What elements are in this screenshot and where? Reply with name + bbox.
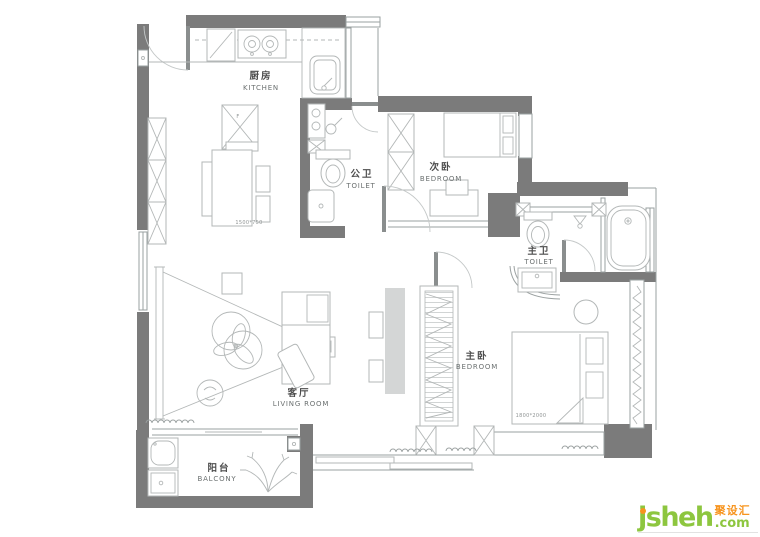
projection-screen-icon	[154, 267, 165, 419]
living-room-label-zh: 客厅	[286, 387, 310, 399]
window-second-bedroom	[519, 114, 532, 158]
side-table-icon	[222, 273, 242, 294]
kitchen-label-en: KITCHEN	[243, 84, 279, 92]
plant-icon	[240, 452, 297, 492]
fridge-icon	[207, 29, 235, 61]
wall-meter-box	[138, 50, 148, 66]
dining-chair	[256, 166, 270, 192]
second-bedroom-door	[382, 186, 430, 232]
speaker-icon	[369, 312, 383, 338]
master-bed-dimension: 1800*2000	[516, 413, 547, 419]
shower-head-icon	[574, 216, 586, 228]
bay-window-band	[494, 432, 604, 455]
entry-door	[144, 26, 190, 70]
island-cabinet	[222, 105, 258, 151]
kitchen-right-wall	[346, 28, 351, 98]
dining-chair	[256, 196, 270, 222]
master-toilet-label-zh: 主卫	[527, 245, 550, 257]
stove-icon	[238, 30, 286, 58]
toilet-icon	[316, 150, 350, 187]
floor-plan-canvas: 厨房 KITCHEN 公卫 TOILET 次卧 BEDROOM 主卫 TOILE…	[0, 0, 760, 537]
living-room-furniture	[152, 267, 335, 435]
window-master-bedroom	[630, 280, 644, 428]
basin-icon	[326, 118, 342, 134]
ceiling-fan-icon	[212, 312, 262, 369]
living-room-label-en: LIVING ROOM	[273, 400, 329, 408]
master-toilet-label-en: TOILET	[523, 258, 553, 266]
logo-tld-text: .com	[715, 517, 751, 530]
balcony-label-zh: 阳台	[207, 462, 230, 474]
second-bedroom-label-en: BEDROOM	[420, 175, 462, 183]
guest-toilet-door	[352, 102, 378, 132]
balcony-label-en: BALCONY	[197, 475, 236, 483]
logo-brand-text: jsheh	[638, 507, 713, 530]
toilet-icon	[524, 212, 552, 247]
shower-tray-icon	[308, 190, 334, 222]
vanity-icon	[518, 268, 556, 292]
dining-bench	[202, 162, 212, 216]
washer-column-icon	[308, 104, 325, 153]
master-bedroom-label-en: BEDROOM	[456, 363, 498, 371]
master-bedroom-label-zh: 主卧	[465, 350, 488, 362]
bathtub-icon	[607, 206, 650, 270]
bed-icon	[444, 113, 516, 157]
guest-toilet-label-zh: 公卫	[350, 169, 373, 180]
balcony-sliding-door	[313, 455, 474, 470]
balcony-threshold	[152, 429, 298, 435]
pouf-icon	[574, 300, 598, 324]
kitchen-label-zh: 厨房	[249, 70, 272, 82]
bedroom-columns	[416, 426, 494, 455]
island-mark: F	[236, 114, 239, 120]
sofa-icon	[277, 292, 330, 389]
drain-box	[288, 438, 300, 450]
desk-icon	[430, 180, 478, 216]
floor-plan-drawing: 厨房 KITCHEN 公卫 TOILET 次卧 BEDROOM 主卫 TOILE…	[0, 0, 760, 537]
laundry-sink-icon	[148, 470, 178, 496]
dining-table-dimension: 1500*750	[235, 220, 262, 226]
guest-toilet-fixtures	[308, 104, 350, 222]
logo-chinese-text: 聚设汇	[715, 505, 751, 516]
watermark-logo: jsheh 聚设汇 .com	[638, 490, 758, 533]
kitchen-sink-icon	[310, 56, 340, 94]
shower-door	[562, 240, 595, 272]
dining-table	[202, 150, 270, 226]
second-bedroom-label-zh: 次卧	[429, 161, 452, 173]
shoe-cabinet	[148, 118, 166, 244]
speaker-icon	[369, 360, 383, 382]
washing-machine-icon	[148, 438, 178, 468]
second-bedroom-wardrobe	[388, 114, 414, 190]
wardrobe-icon	[420, 286, 458, 426]
master-bedroom-door	[434, 252, 472, 288]
bed-icon	[512, 332, 608, 424]
guest-toilet-label-en: TOILET	[345, 182, 375, 190]
tv-wall	[385, 288, 405, 394]
